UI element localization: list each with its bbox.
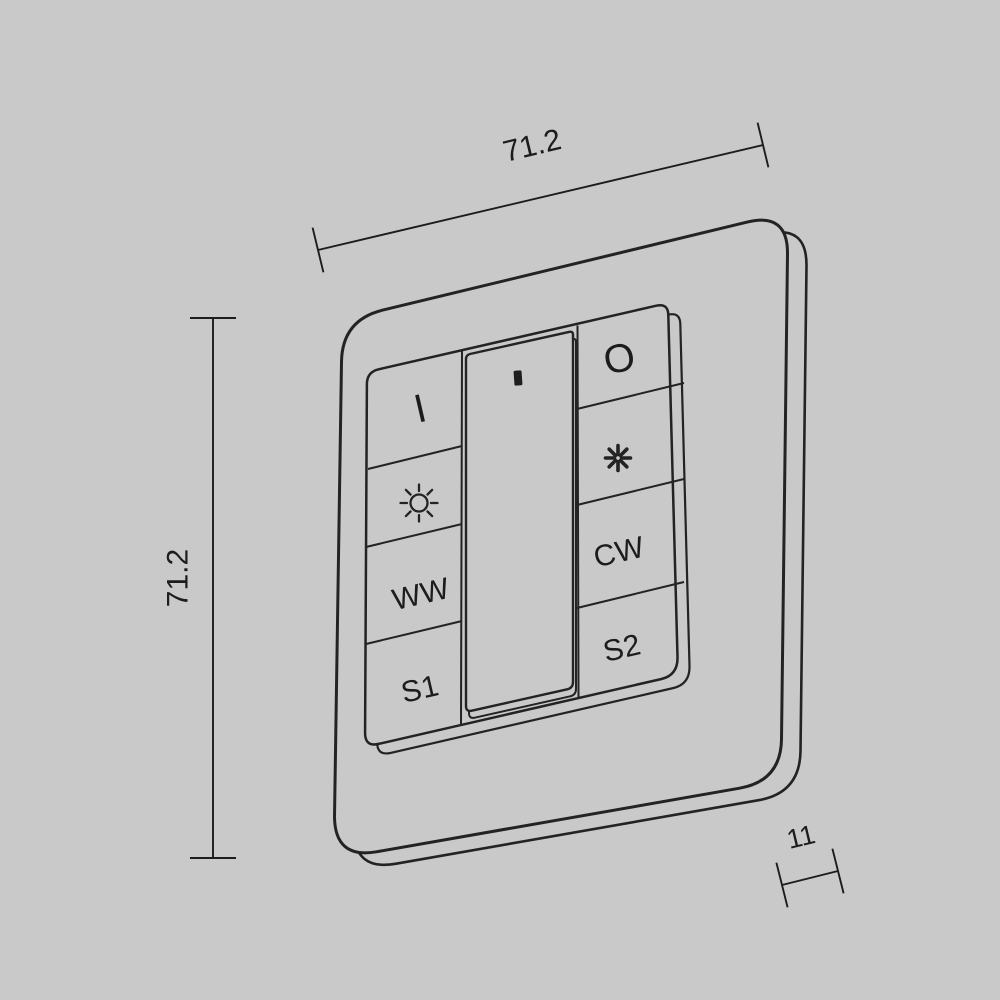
height-dimension-label: 71.2: [162, 549, 195, 607]
height-dimension: 71.2: [162, 318, 237, 858]
diagram-canvas: I O WW CW S1 S2 71.2 71.2: [0, 0, 1000, 1000]
depth-dimension-line: [782, 871, 838, 885]
depth-dimension-tick-right: [832, 849, 843, 894]
depth-dimension-tick-left: [776, 863, 787, 908]
depth-dimension: 11: [776, 819, 843, 907]
left-column-right-edge: [461, 351, 462, 725]
right-column-left-edge: [578, 326, 579, 699]
rocker-front-face: [466, 332, 573, 711]
led-indicator: [513, 370, 522, 386]
dimension-diagram: I O WW CW S1 S2 71.2 71.2: [0, 0, 1000, 1000]
width-dimension-label: 71.2: [500, 123, 564, 169]
button-module: I O WW CW S1 S2: [365, 305, 689, 753]
depth-dimension-label: 11: [784, 819, 818, 855]
rocker-key: [466, 332, 576, 718]
